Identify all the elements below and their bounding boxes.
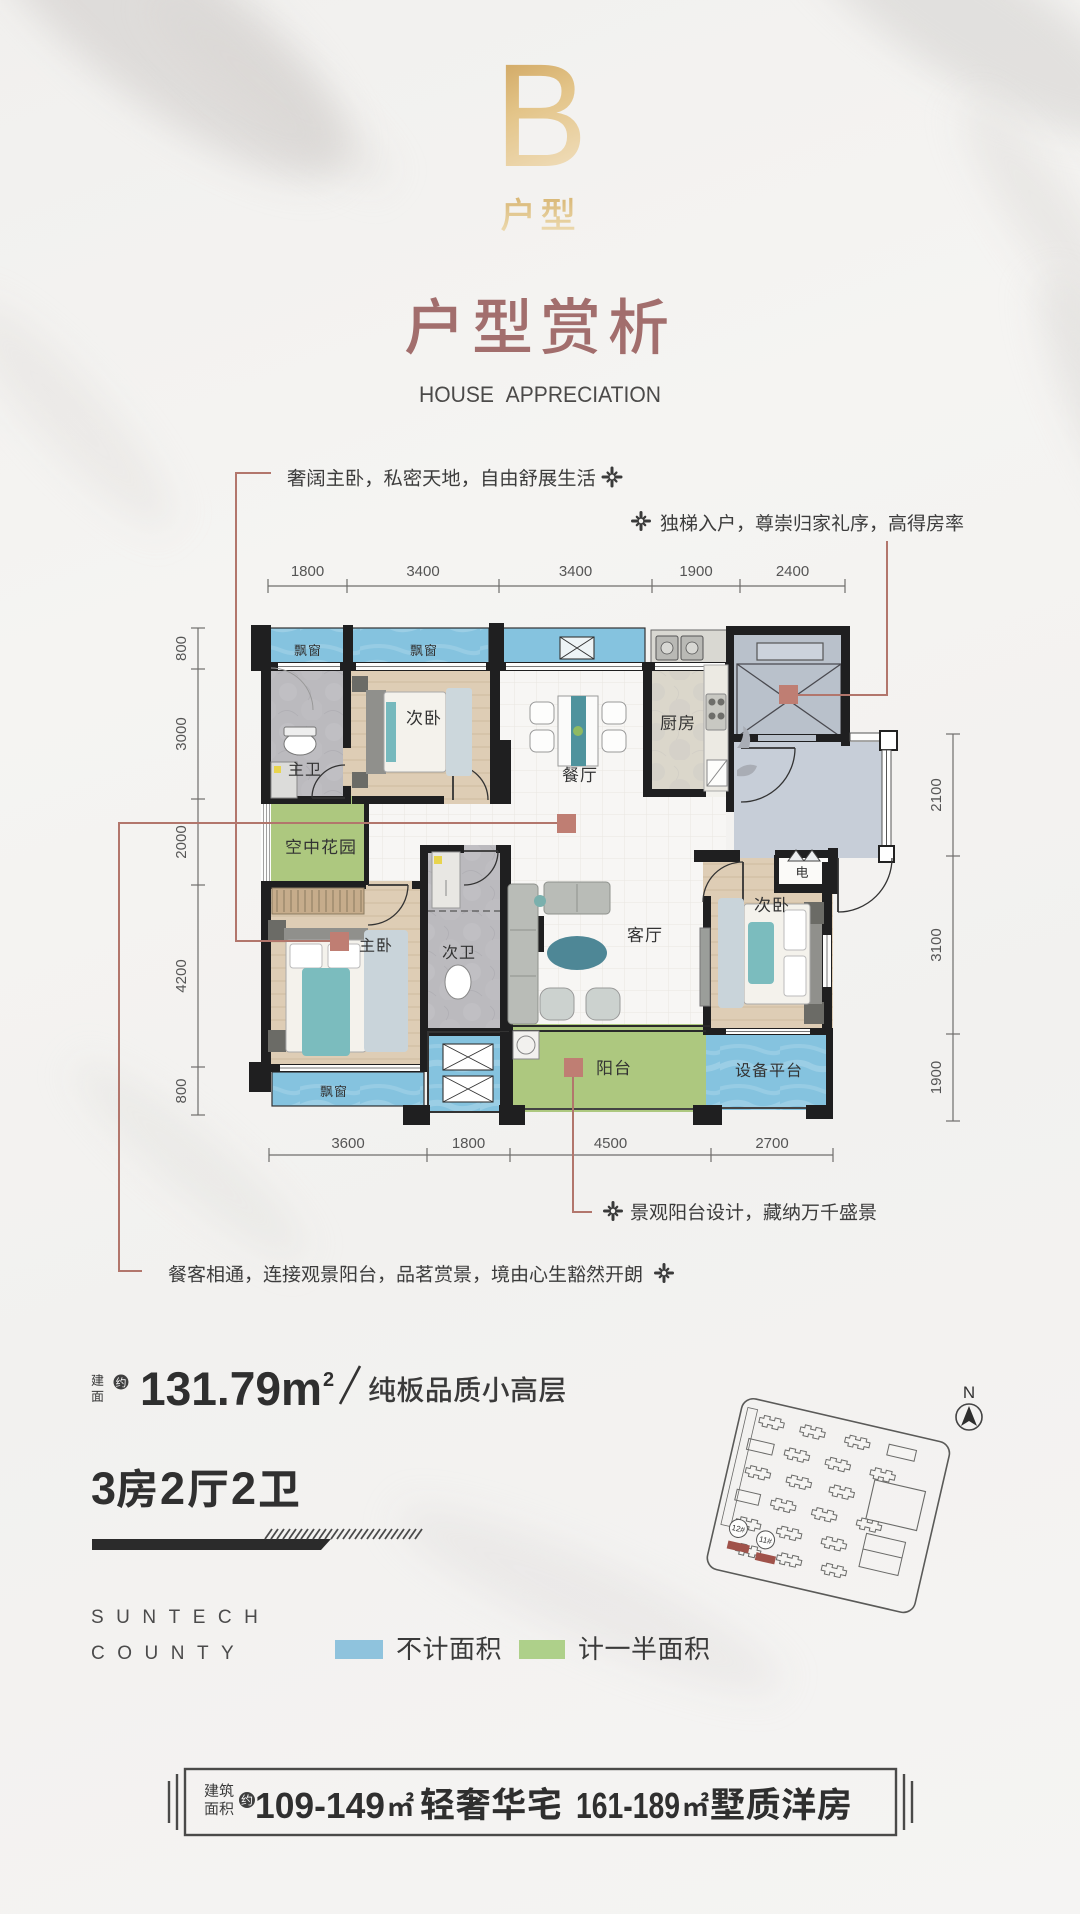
svg-text:2400: 2400	[776, 563, 809, 580]
svg-text:3400: 3400	[559, 563, 592, 580]
svg-text:131.79m: 131.79m	[140, 1362, 322, 1415]
svg-text:1800: 1800	[452, 1135, 485, 1152]
svg-text:3000: 3000	[173, 717, 190, 750]
svg-text:2000: 2000	[173, 825, 190, 858]
svg-text:2: 2	[231, 1463, 256, 1514]
svg-text:1800: 1800	[291, 563, 324, 580]
svg-text:HOUSE APPRECIATION: HOUSE APPRECIATION	[419, 382, 661, 407]
svg-text:2700: 2700	[755, 1135, 788, 1152]
svg-text:N: N	[963, 1383, 975, 1402]
svg-text:1900: 1900	[679, 563, 712, 580]
svg-text:3100: 3100	[928, 928, 945, 961]
svg-text:1900: 1900	[928, 1061, 945, 1094]
svg-text:3: 3	[91, 1463, 116, 1514]
svg-text:161-189: 161-189	[576, 1785, 680, 1826]
svg-text:800: 800	[173, 1078, 190, 1103]
svg-text:4500: 4500	[594, 1135, 627, 1152]
svg-text:2100: 2100	[928, 778, 945, 811]
svg-text:109-149: 109-149	[255, 1785, 385, 1826]
svg-text:3600: 3600	[331, 1135, 364, 1152]
svg-text:4200: 4200	[173, 959, 190, 992]
svg-text:800: 800	[173, 636, 190, 661]
svg-text:3400: 3400	[406, 563, 439, 580]
svg-text:2: 2	[160, 1463, 185, 1514]
svg-text:B: B	[494, 34, 587, 198]
svg-text:COUNTY: COUNTY	[91, 1643, 246, 1664]
svg-text:2: 2	[323, 1369, 334, 1391]
svg-text:SUNTECH: SUNTECH	[91, 1607, 270, 1628]
